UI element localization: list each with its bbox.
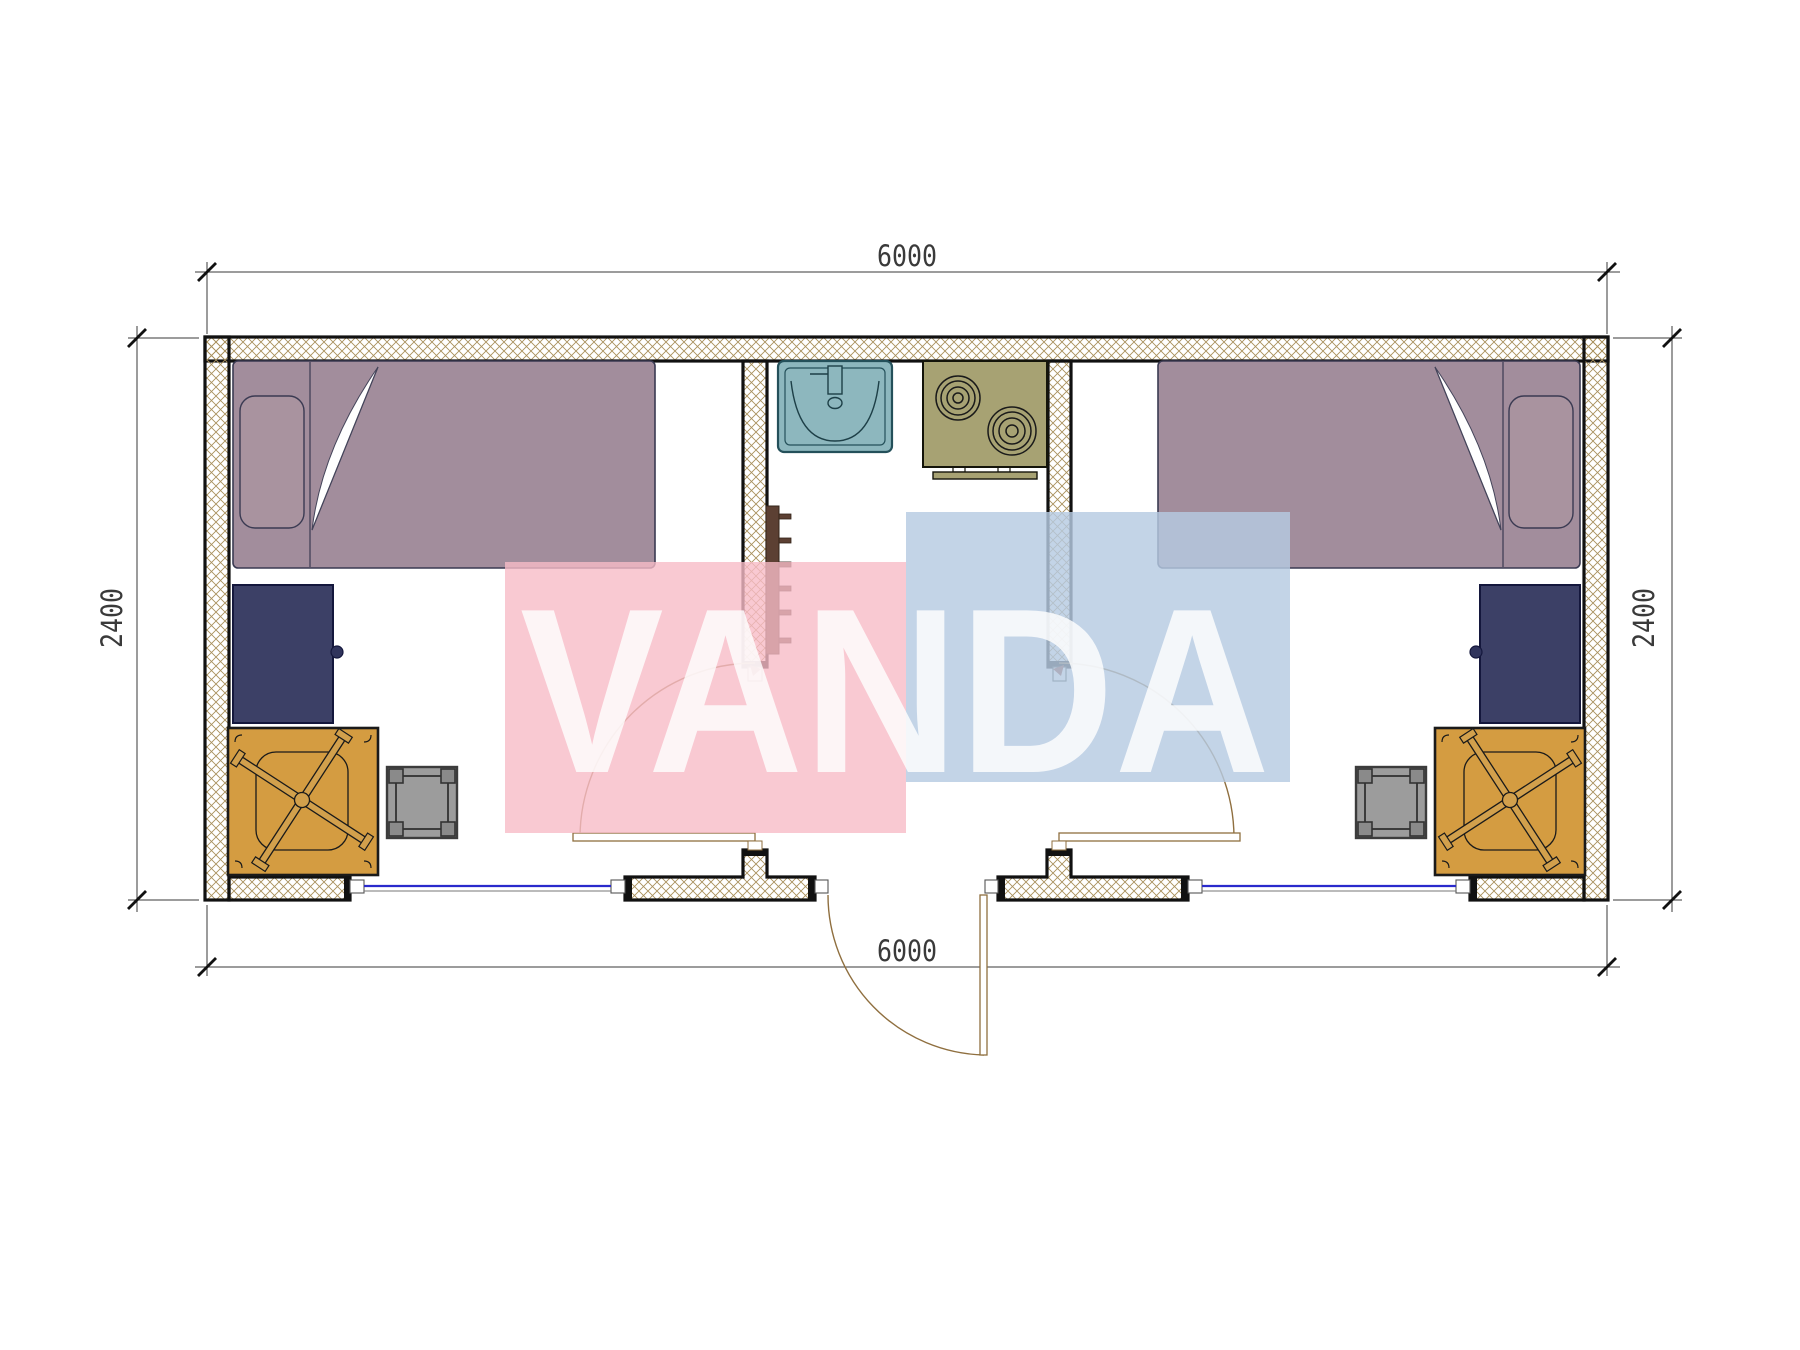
stool-left <box>387 767 457 838</box>
floor-plan-drawing: 6000 6000 2400 2400 <box>0 0 1800 1350</box>
stool-right <box>1356 767 1426 838</box>
door-hinge <box>1052 841 1066 850</box>
wall-end-cap <box>743 850 767 856</box>
floor-plan-page: 6000 6000 2400 2400 <box>0 0 1800 1350</box>
watermark: VANDA <box>505 512 1290 833</box>
dimension-right-label: 2400 <box>1627 588 1661 648</box>
window-frame <box>1456 880 1470 893</box>
faucet <box>828 366 842 394</box>
window-frame <box>350 880 364 893</box>
door-frame <box>815 880 828 893</box>
wall-end-cap <box>1470 877 1477 900</box>
wall-bottom-door-right <box>998 850 1188 900</box>
dimension-top-label: 6000 <box>877 239 937 273</box>
wall-right <box>1584 337 1608 900</box>
door-leaf-right-room <box>1059 833 1240 841</box>
pillow-left <box>240 396 304 528</box>
cabinet-right <box>1480 585 1580 723</box>
wall-end-cap <box>1047 850 1071 856</box>
door-leaf-left-room <box>573 833 755 841</box>
wall-bottom-door-left <box>625 850 815 900</box>
door-frame <box>985 880 998 893</box>
wall-end-cap <box>625 877 632 900</box>
wall-end-cap <box>998 877 1005 900</box>
door-hinge <box>748 841 762 850</box>
watermark-text: VANDA <box>520 559 1270 822</box>
wall-bottom-right <box>1470 877 1584 900</box>
pillow-right <box>1509 396 1573 528</box>
cabinet-knob <box>331 646 343 658</box>
windows <box>350 880 1470 893</box>
stove-handle <box>933 472 1037 479</box>
wall-left <box>205 337 229 900</box>
wall-end-cap <box>1181 877 1188 900</box>
wall-top <box>205 337 1608 361</box>
dimension-bottom-label: 6000 <box>877 934 937 968</box>
wall-end-cap <box>808 877 815 900</box>
entry-door-leaf <box>980 895 987 1055</box>
wall-bottom-left <box>229 877 350 900</box>
cabinet-knob <box>1470 646 1482 658</box>
cabinet-left <box>233 585 333 723</box>
entry-door-swing-arc <box>828 895 984 1055</box>
dimension-left-label: 2400 <box>95 588 129 648</box>
window-frame <box>1188 880 1202 893</box>
window-frame <box>611 880 625 893</box>
